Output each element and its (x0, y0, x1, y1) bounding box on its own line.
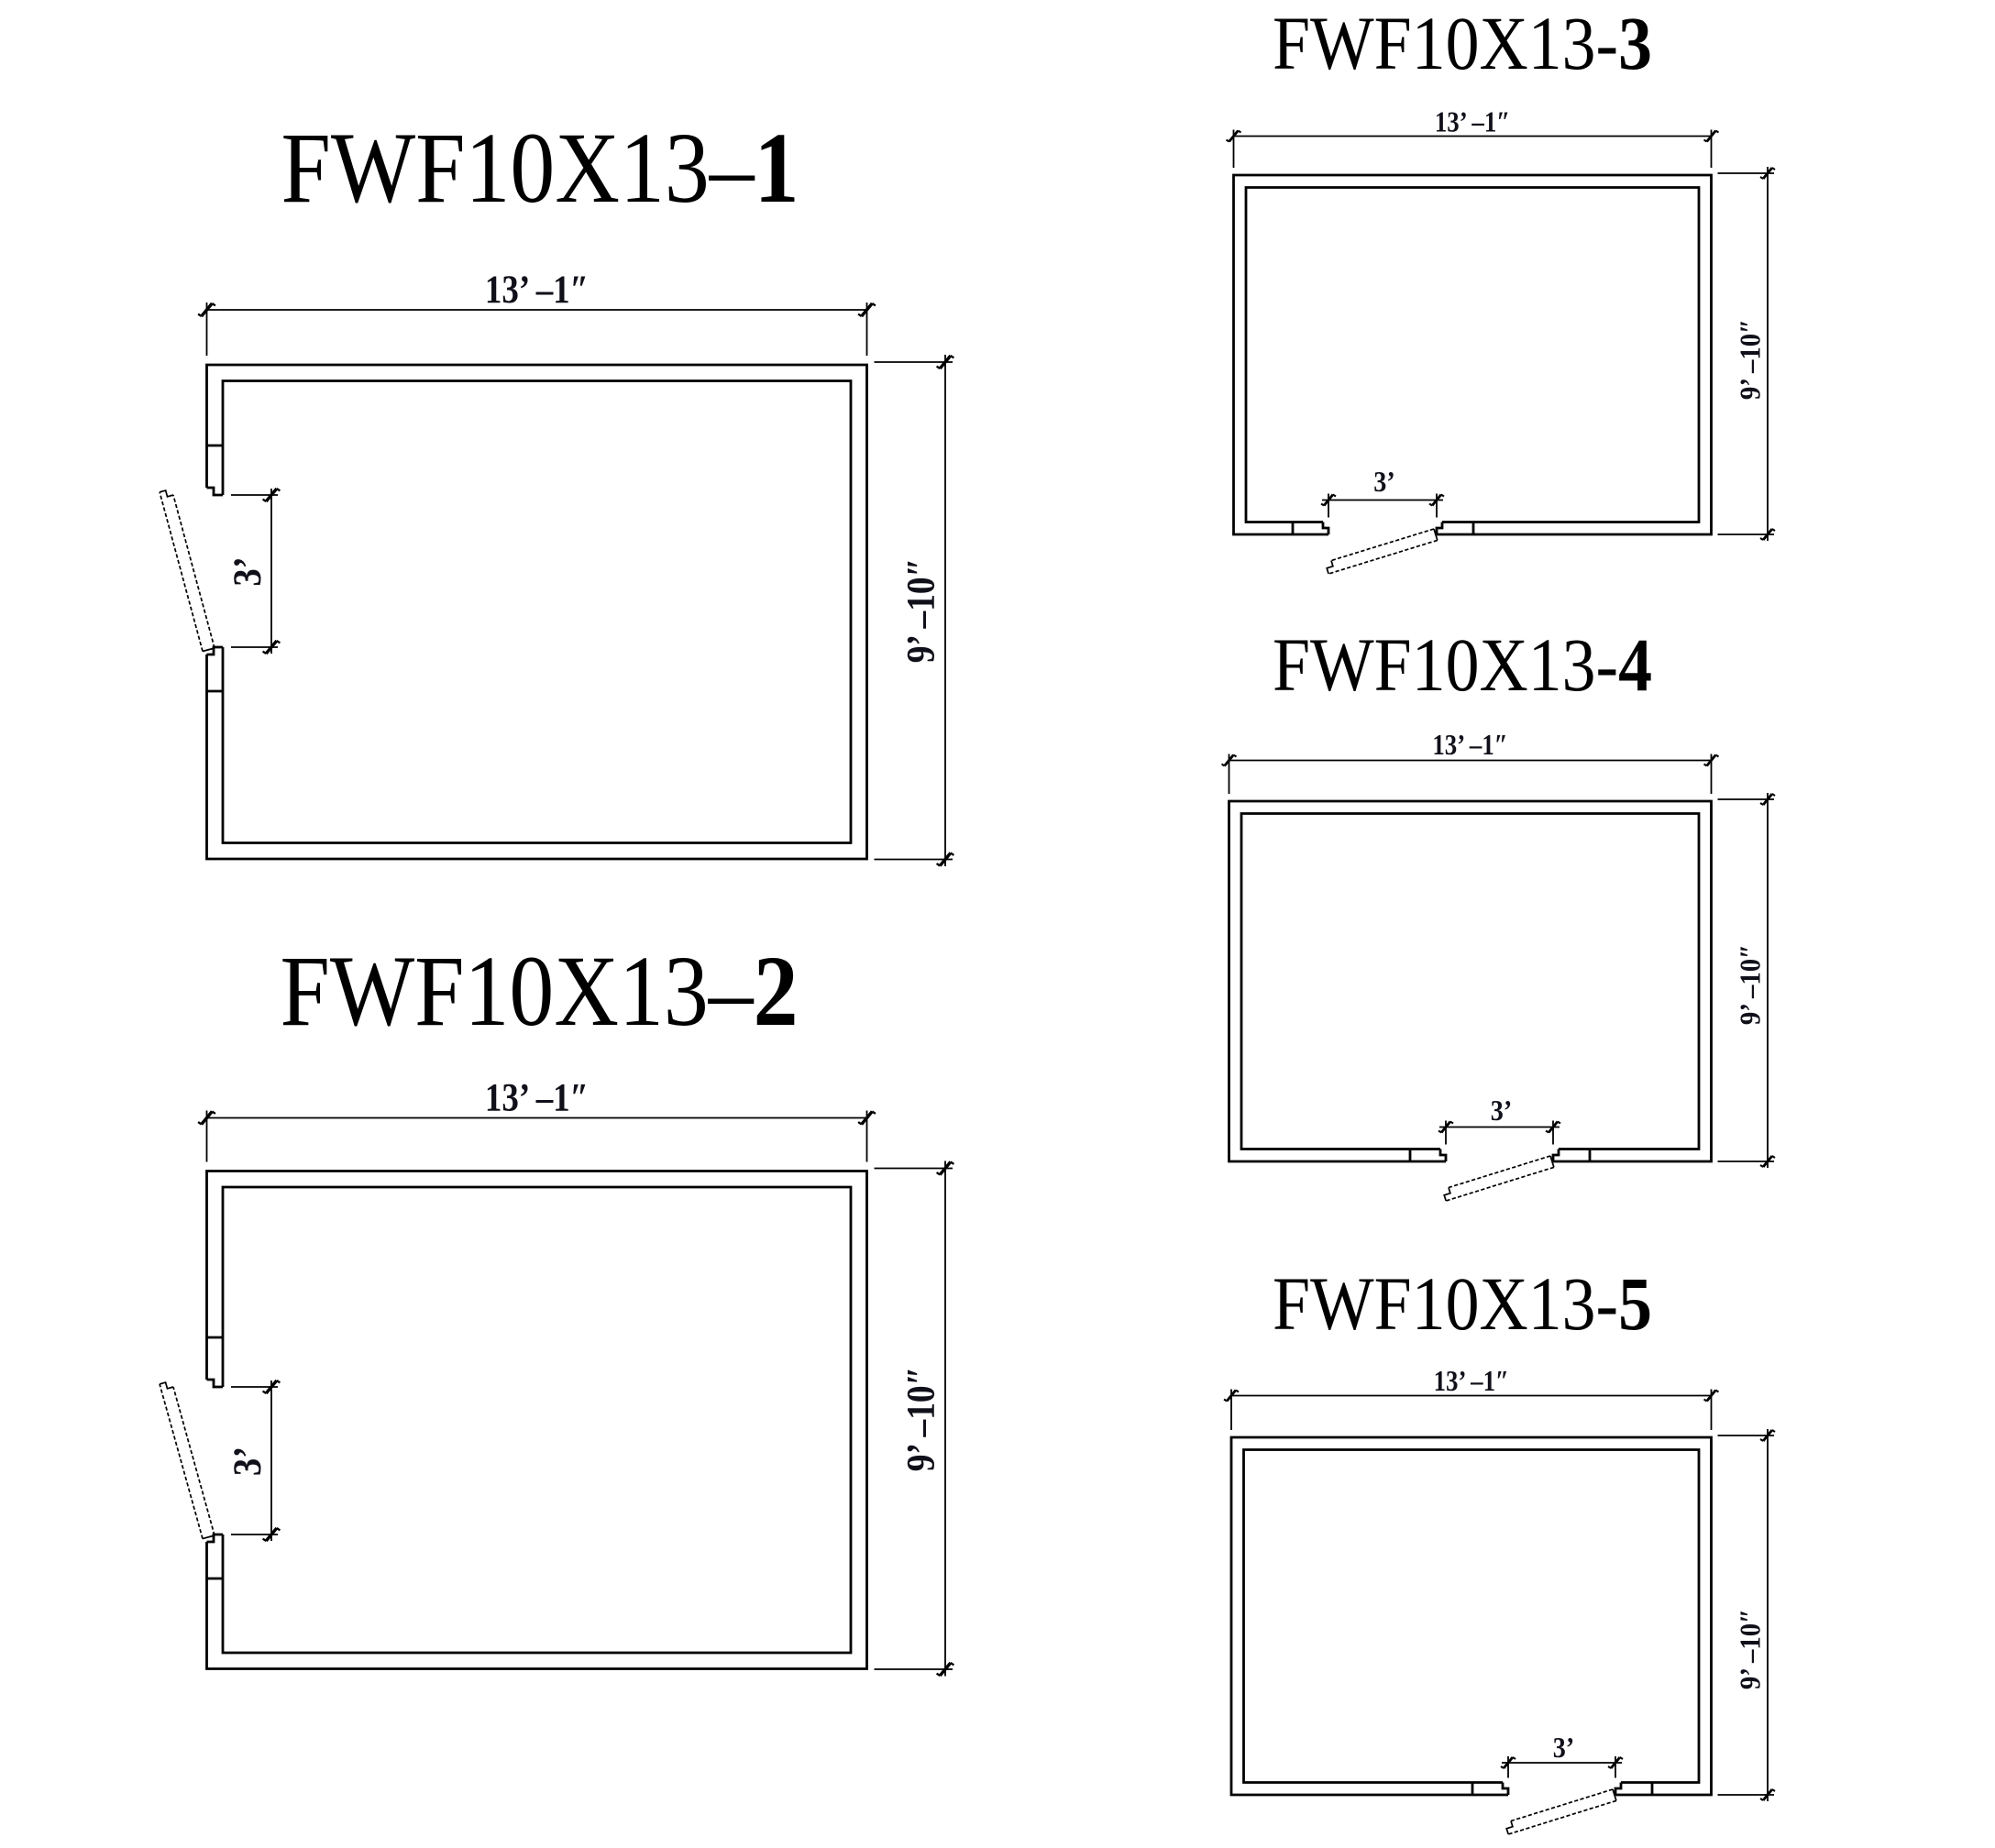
svg-text:13’ –1″: 13’ –1″ (485, 267, 589, 311)
svg-text:13’ –1″: 13’ –1″ (1434, 1366, 1509, 1398)
svg-text:3’: 3’ (1553, 1731, 1574, 1764)
svg-text:3’: 3’ (226, 556, 269, 586)
svg-text:9’ –10″: 9’ –10″ (1734, 1609, 1767, 1689)
svg-text:3’: 3’ (226, 1446, 269, 1476)
svg-text:FWF10X13–2: FWF10X13–2 (280, 935, 798, 1048)
svg-text:FWF10X13–1: FWF10X13–1 (281, 112, 799, 225)
svg-text:FWF10X13-4: FWF10X13-4 (1273, 622, 1652, 707)
svg-text:9’ –10″: 9’ –10″ (898, 558, 942, 664)
svg-text:FWF10X13-5: FWF10X13-5 (1273, 1261, 1652, 1346)
svg-text:13’ –1″: 13’ –1″ (1435, 106, 1510, 138)
svg-text:13’ –1″: 13’ –1″ (1432, 730, 1507, 762)
svg-text:13’ –1″: 13’ –1″ (485, 1075, 589, 1119)
svg-text:FWF10X13-3: FWF10X13-3 (1273, 1, 1652, 85)
svg-text:9’ –10″: 9’ –10″ (898, 1367, 942, 1472)
svg-text:3’: 3’ (1373, 465, 1394, 498)
svg-text:3’: 3’ (1491, 1094, 1512, 1127)
svg-text:9’ –10″: 9’ –10″ (1734, 319, 1767, 400)
svg-text:9’ –10″: 9’ –10″ (1734, 944, 1767, 1025)
